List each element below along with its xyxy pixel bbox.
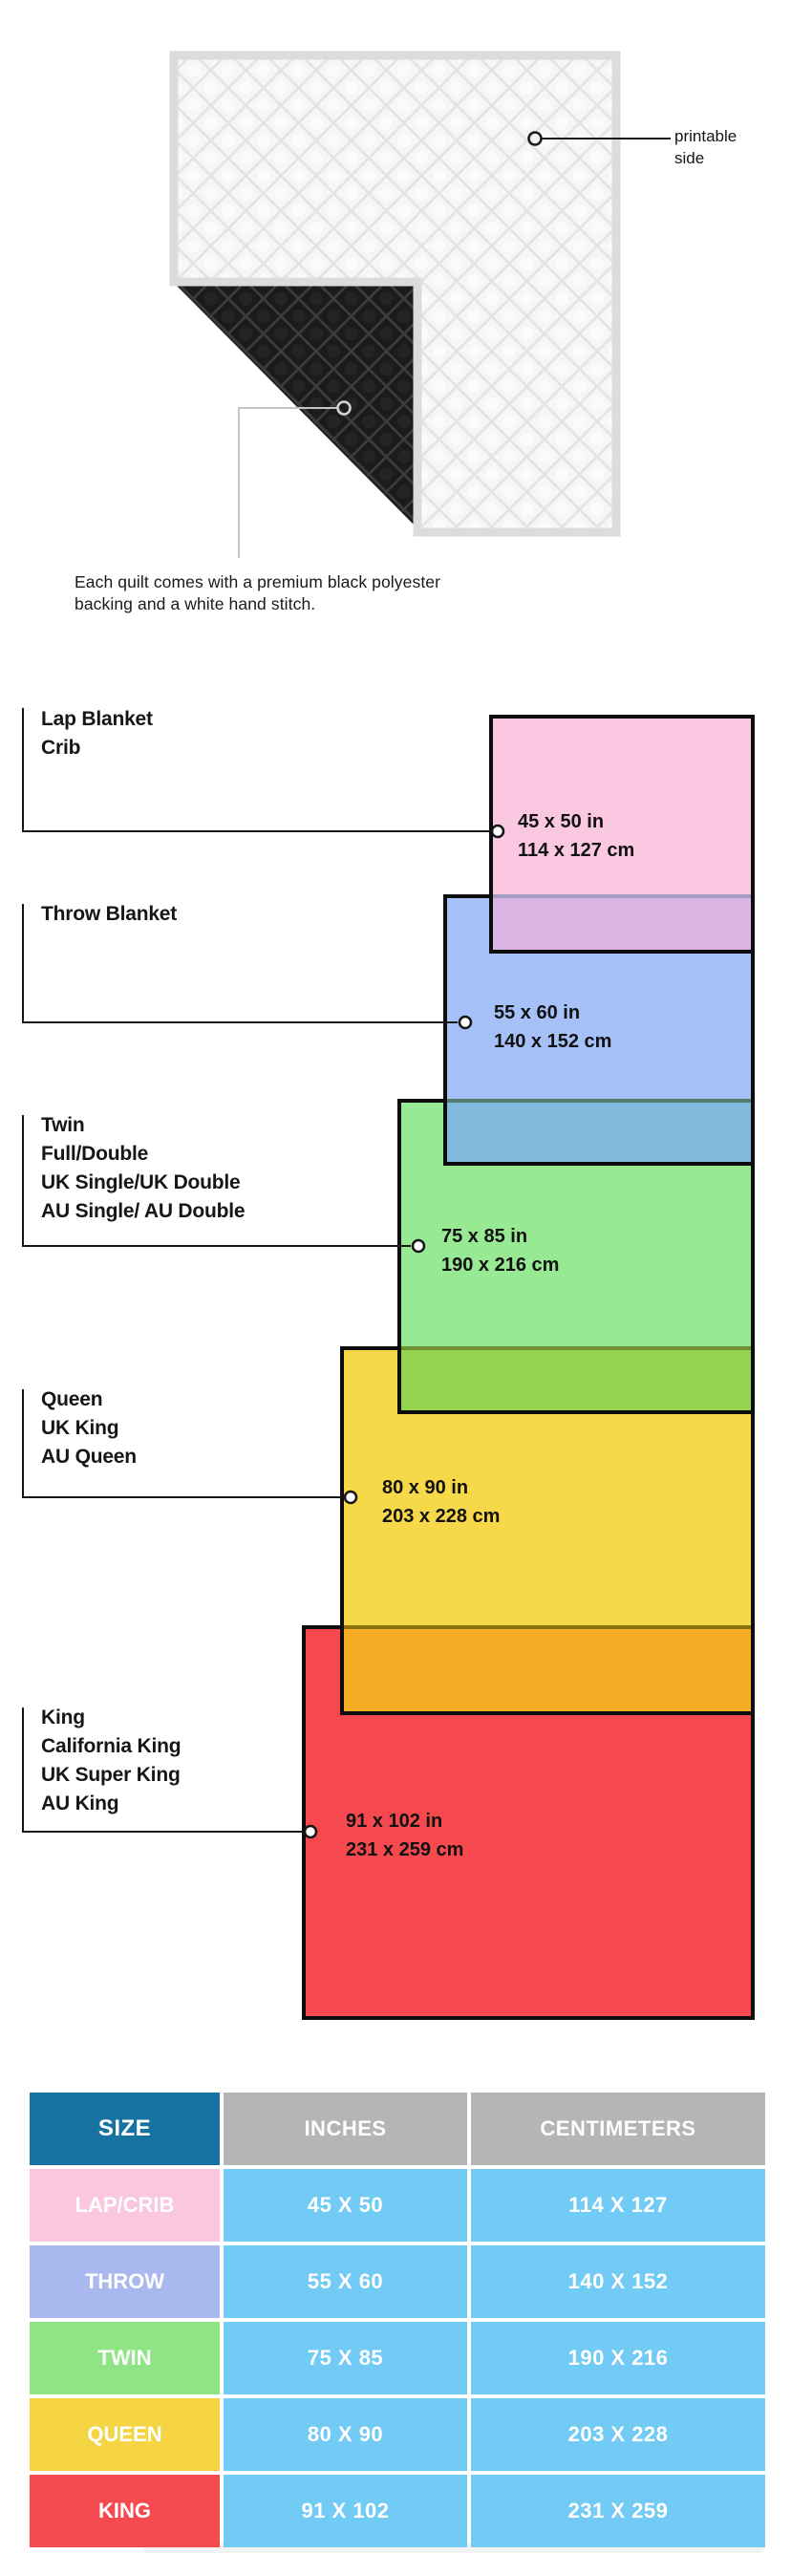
table-row-cm-cell: 190 X 216 — [471, 2322, 765, 2394]
dimensions-inches: 80 x 90 in — [382, 1473, 500, 1502]
label-line: Crib — [41, 734, 153, 762]
table-header-inches: INCHES — [224, 2093, 467, 2165]
label-line: AU King — [41, 1790, 181, 1818]
table-header-centimeters: CENTIMETERS — [471, 2093, 765, 2165]
label-throw: Throw Blanket — [41, 900, 177, 929]
table-row-inches-cell: 45 X 50 — [224, 2169, 467, 2242]
dimensions-king: 91 x 102 in 231 x 259 cm — [346, 1807, 463, 1864]
label-line: Lap Blanket — [41, 705, 153, 734]
dimensions-inches: 45 x 50 in — [518, 807, 634, 836]
label-king: King California King UK Super King AU Ki… — [41, 1704, 181, 1818]
label-line: UK Super King — [41, 1761, 181, 1790]
table-header-size: SIZE — [30, 2093, 220, 2165]
table-row-size-cell: KING — [30, 2475, 220, 2547]
dimensions-lap-crib: 45 x 50 in 114 x 127 cm — [518, 807, 634, 865]
dimensions-twin: 75 x 85 in 190 x 216 cm — [441, 1222, 559, 1279]
dimensions-inches: 75 x 85 in — [441, 1222, 559, 1251]
label-line: Queen — [41, 1385, 137, 1414]
dimensions-inches: 55 x 60 in — [494, 998, 611, 1027]
dimensions-queen: 80 x 90 in 203 x 228 cm — [382, 1473, 500, 1531]
label-line: Twin — [41, 1111, 245, 1140]
label-lap-crib: Lap Blanket Crib — [41, 705, 153, 762]
table-row-size-cell: THROW — [30, 2245, 220, 2318]
label-twin: Twin Full/Double UK Single/UK Double AU … — [41, 1111, 245, 1226]
label-queen: Queen UK King AU Queen — [41, 1385, 137, 1471]
table-row-size-cell: LAP/CRIB — [30, 2169, 220, 2242]
dimensions-inches: 91 x 102 in — [346, 1807, 463, 1835]
overlap-throw-twin — [447, 1099, 751, 1162]
table-row-inches-cell: 91 X 102 — [224, 2475, 467, 2547]
black-backing-fold — [176, 284, 417, 527]
dimensions-cm: 231 x 259 cm — [346, 1835, 463, 1864]
overlap-lap-throw — [493, 894, 751, 950]
table-row-cm-cell: 203 X 228 — [471, 2398, 765, 2471]
label-line: California King — [41, 1732, 181, 1761]
dimensions-cm: 203 x 228 cm — [382, 1502, 500, 1531]
table-row-cm-cell: 140 X 152 — [471, 2245, 765, 2318]
label-line: AU Queen — [41, 1443, 137, 1471]
label-line: King — [41, 1704, 181, 1732]
dimensions-cm: 114 x 127 cm — [518, 836, 634, 865]
dimensions-cm: 140 x 152 cm — [494, 1027, 611, 1056]
table-row-cm-cell: 114 X 127 — [471, 2169, 765, 2242]
label-line: UK Single/UK Double — [41, 1169, 245, 1197]
table-row-inches-cell: 80 X 90 — [224, 2398, 467, 2471]
label-line: Full/Double — [41, 1140, 245, 1169]
dimensions-throw: 55 x 60 in 140 x 152 cm — [494, 998, 611, 1056]
dimensions-cm: 190 x 216 cm — [441, 1251, 559, 1279]
overlap-twin-queen — [401, 1346, 751, 1410]
size-table: SIZE INCHES CENTIMETERS LAP/CRIB 45 X 50… — [30, 2093, 765, 2547]
quilt-illustration — [0, 0, 791, 669]
label-line: Throw Blanket — [41, 900, 177, 929]
label-line: AU Single/ AU Double — [41, 1197, 245, 1226]
table-row-cm-cell: 231 X 259 — [471, 2475, 765, 2547]
table-row-inches-cell: 75 X 85 — [224, 2322, 467, 2394]
table-row-size-cell: TWIN — [30, 2322, 220, 2394]
table-row-size-cell: QUEEN — [30, 2398, 220, 2471]
table-row-inches-cell: 55 X 60 — [224, 2245, 467, 2318]
overlap-queen-king — [344, 1625, 751, 1711]
label-line: UK King — [41, 1414, 137, 1443]
